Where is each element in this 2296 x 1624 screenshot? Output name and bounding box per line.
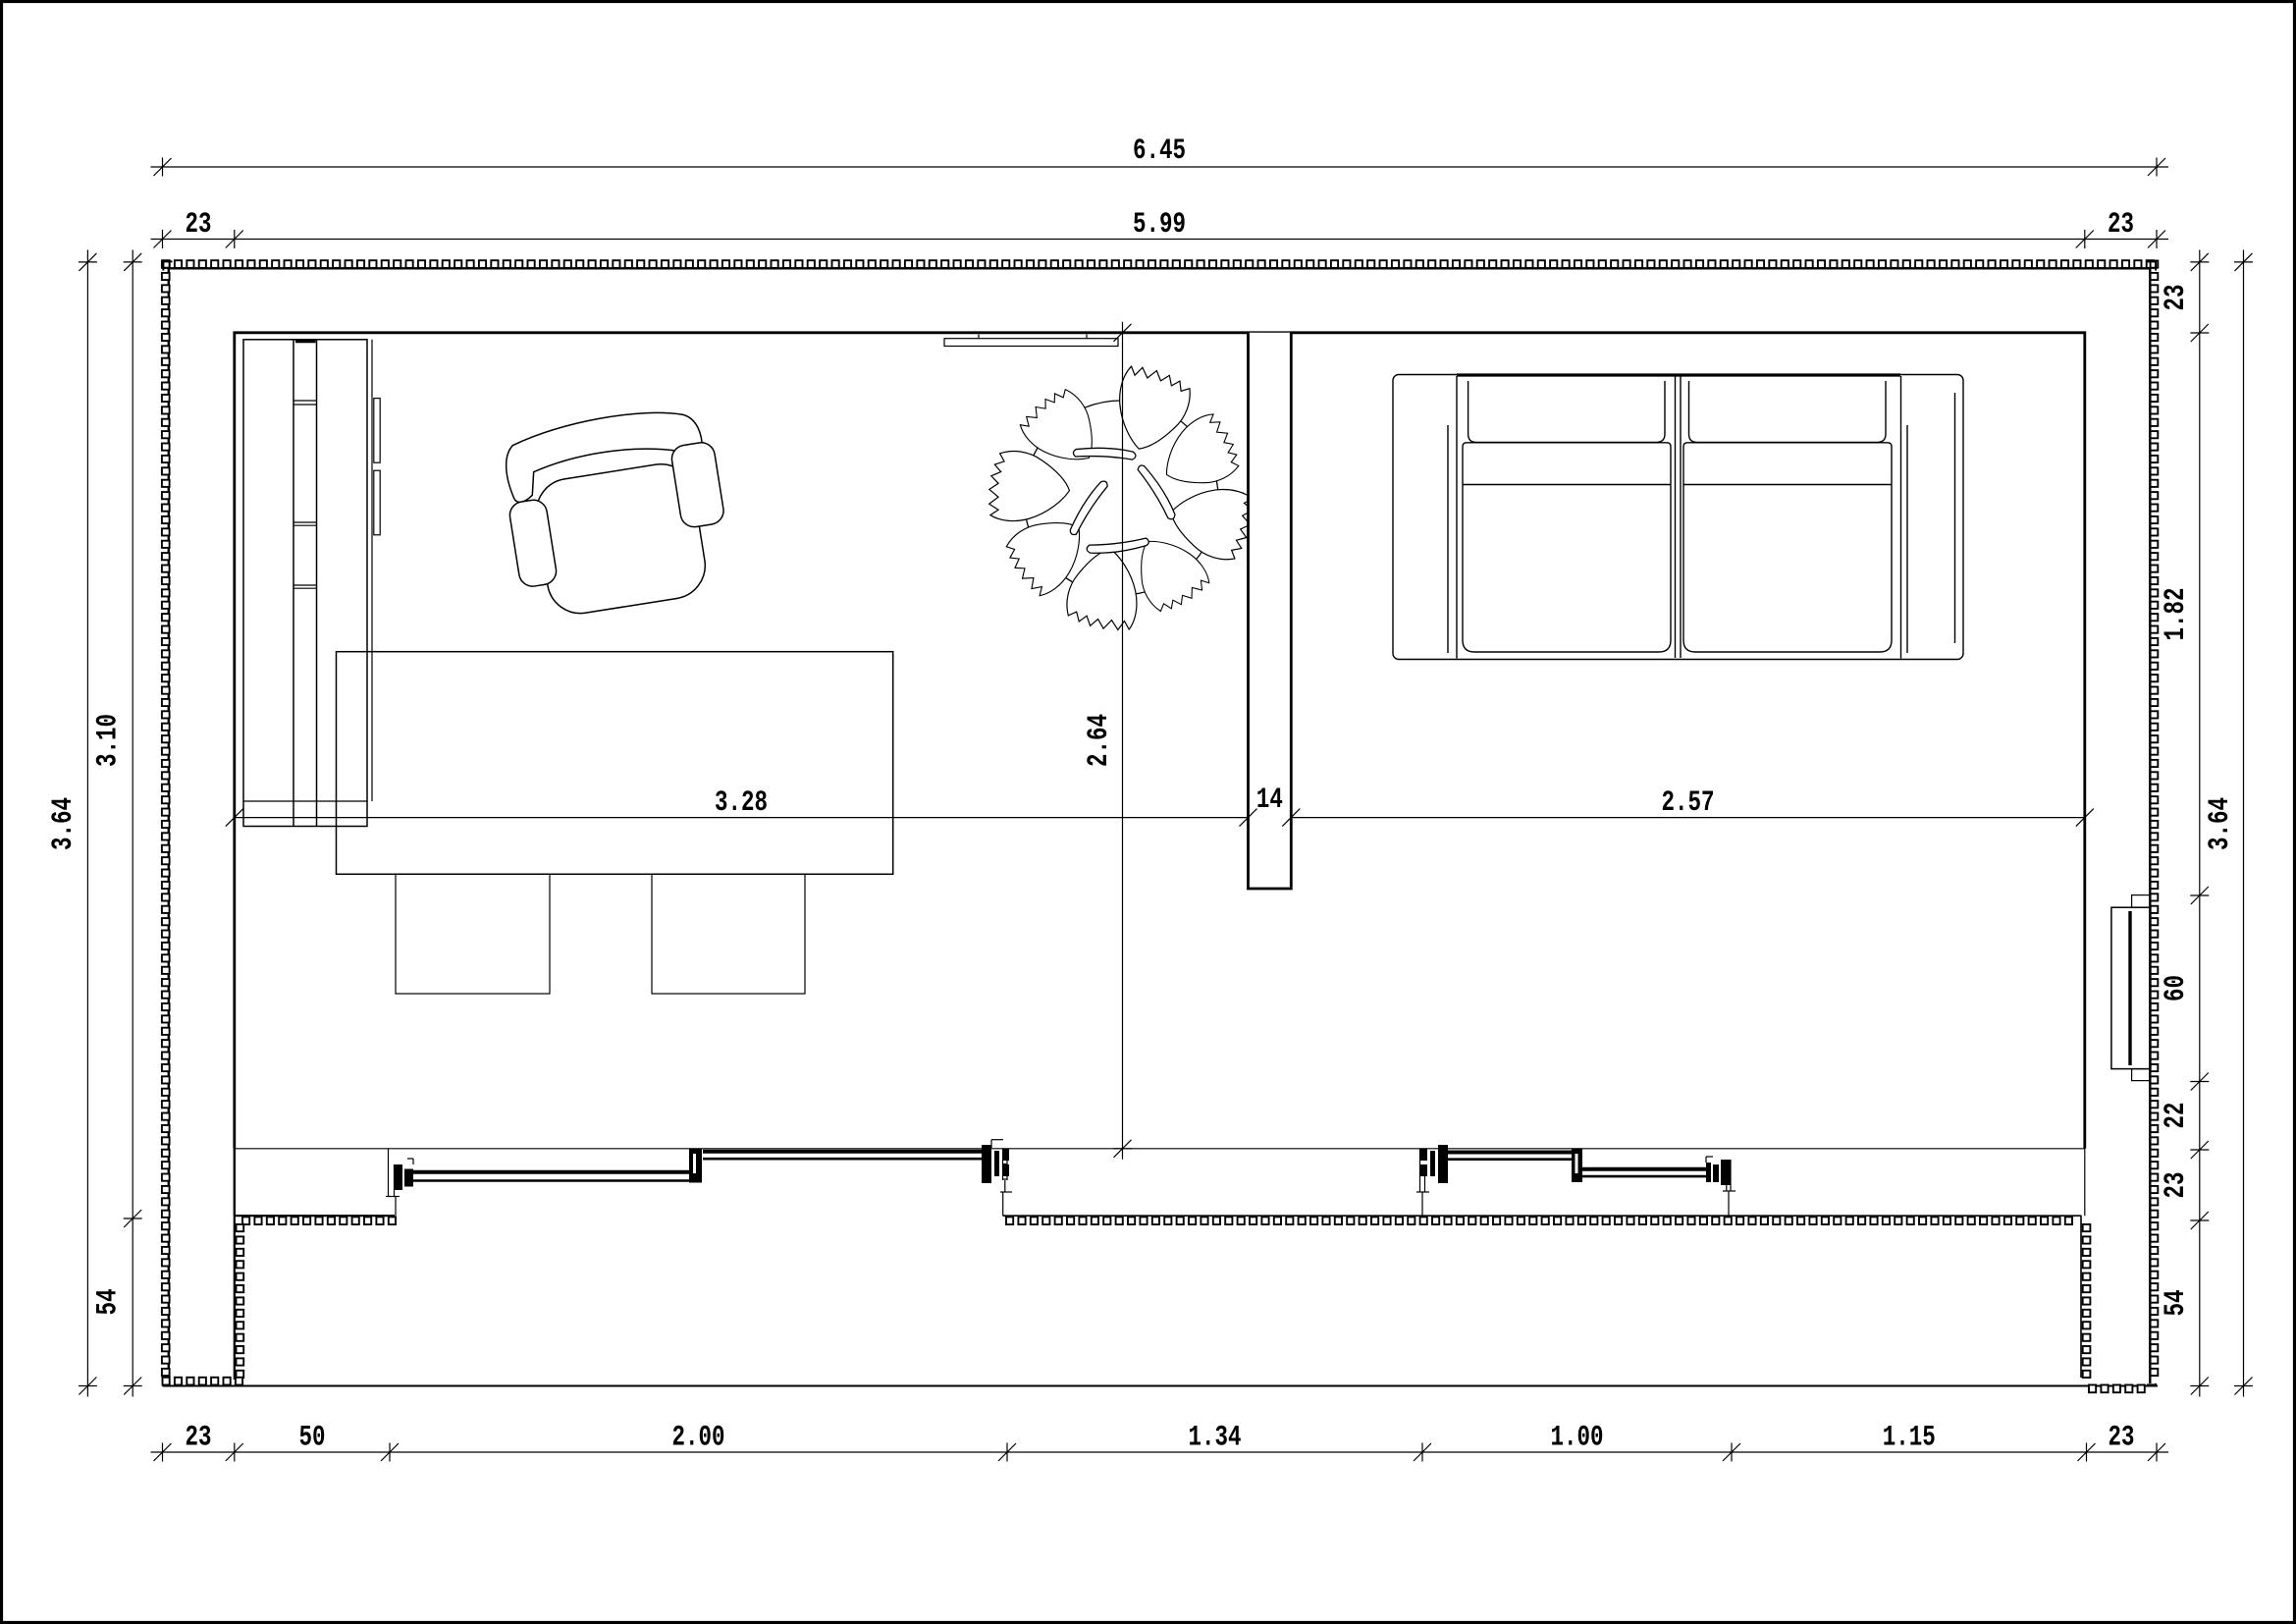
svg-text:2.64: 2.64 [1083, 714, 1116, 767]
svg-text:2.57: 2.57 [1662, 786, 1715, 820]
svg-text:23: 23 [2160, 285, 2193, 311]
svg-text:23: 23 [2108, 208, 2134, 242]
svg-text:54: 54 [2160, 1290, 2193, 1317]
svg-text:2.00: 2.00 [672, 1422, 725, 1455]
svg-text:23: 23 [2109, 1422, 2135, 1455]
svg-text:54: 54 [92, 1289, 126, 1316]
svg-text:14: 14 [1256, 784, 1283, 817]
svg-text:3.64: 3.64 [47, 797, 80, 850]
svg-text:23: 23 [186, 208, 212, 242]
svg-text:6.45: 6.45 [1133, 135, 1186, 168]
svg-text:60: 60 [2160, 975, 2193, 1001]
svg-text:5.99: 5.99 [1133, 208, 1186, 242]
svg-text:23: 23 [186, 1422, 212, 1455]
svg-text:3.10: 3.10 [92, 714, 126, 767]
svg-text:1.15: 1.15 [1883, 1422, 1936, 1455]
svg-text:23: 23 [2160, 1172, 2193, 1199]
svg-text:50: 50 [299, 1422, 326, 1455]
svg-text:1.00: 1.00 [1551, 1422, 1604, 1455]
svg-text:3.64: 3.64 [2204, 797, 2237, 850]
svg-text:1.34: 1.34 [1189, 1422, 1242, 1455]
svg-text:1.82: 1.82 [2160, 588, 2193, 641]
svg-text:22: 22 [2160, 1103, 2193, 1129]
svg-text:3.28: 3.28 [715, 786, 768, 820]
